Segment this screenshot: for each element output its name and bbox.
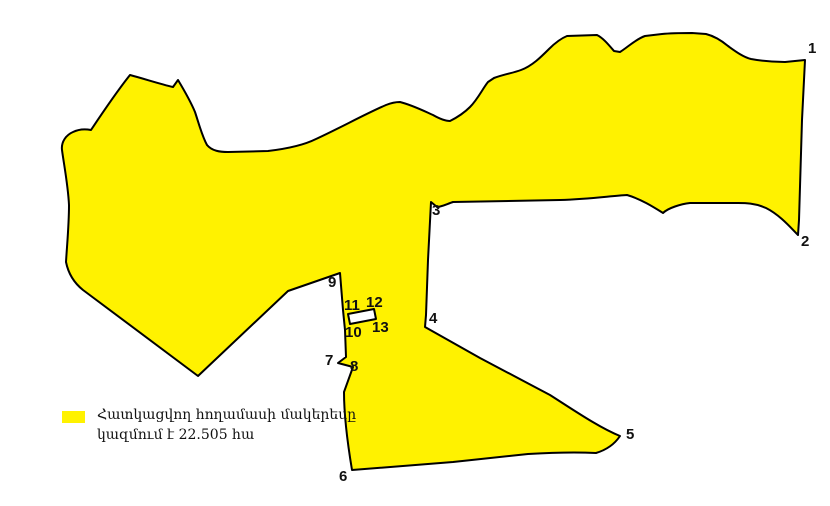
vertex-label-2: 2 bbox=[801, 234, 809, 249]
parcel-map-canvas: 12345678910111213 Հատկացվող հողամասի մակ… bbox=[0, 0, 830, 506]
vertex-label-13: 13 bbox=[372, 320, 389, 335]
vertex-label-8: 8 bbox=[350, 359, 358, 374]
vertex-label-7: 7 bbox=[325, 353, 333, 368]
legend-line-2: կազմում է 22.505 հա bbox=[97, 425, 356, 445]
legend: Հատկացվող հողամասի մակերեսը կազմում է 22… bbox=[62, 405, 356, 445]
vertex-label-9: 9 bbox=[328, 275, 336, 290]
vertex-label-5: 5 bbox=[626, 427, 634, 442]
vertex-label-1: 1 bbox=[808, 41, 816, 56]
vertex-label-3: 3 bbox=[432, 203, 440, 218]
vertex-label-12: 12 bbox=[366, 295, 383, 310]
vertex-label-4: 4 bbox=[429, 311, 437, 326]
legend-line-1: Հատկացվող հողամասի մակերեսը bbox=[97, 405, 356, 425]
legend-swatch bbox=[62, 411, 85, 423]
legend-text: Հատկացվող հողամասի մակերեսը կազմում է 22… bbox=[97, 405, 356, 445]
vertex-label-10: 10 bbox=[345, 325, 362, 340]
vertex-label-6: 6 bbox=[339, 469, 347, 484]
vertex-label-11: 11 bbox=[344, 298, 360, 313]
